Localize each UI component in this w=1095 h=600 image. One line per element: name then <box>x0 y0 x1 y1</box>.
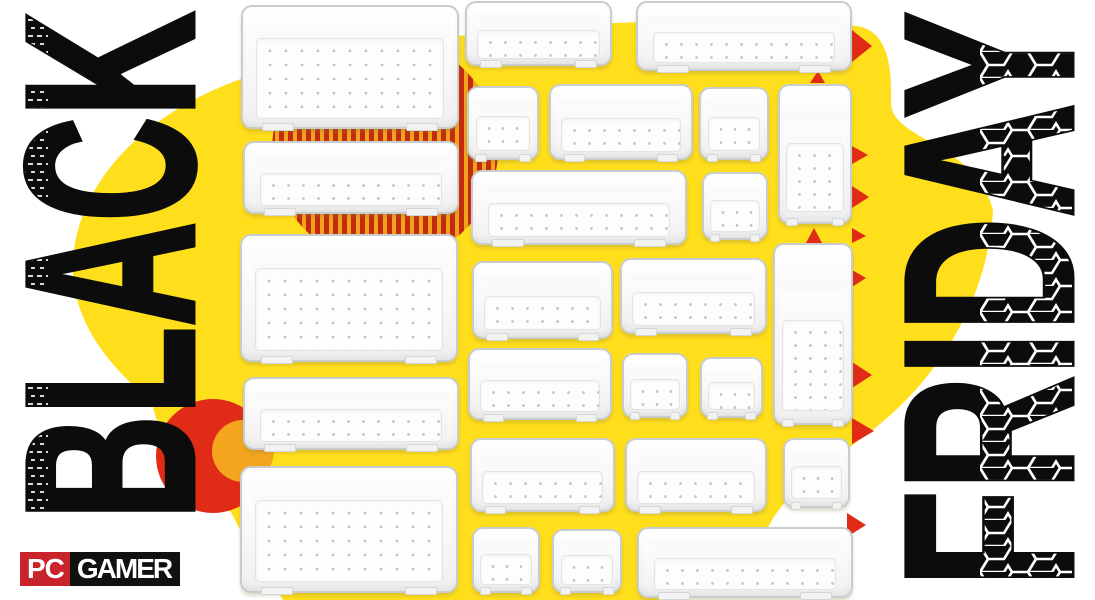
black-friday-promo-banner: BLACK FRIDAY BLACK FRIDAY PC GAMER <box>0 0 1095 600</box>
friday-honeycomb-texture <box>980 0 1095 600</box>
logo-pc-box: PC <box>20 552 70 586</box>
pc-gamer-logo: PC GAMER <box>20 552 180 586</box>
headline-words: BLACK FRIDAY BLACK FRIDAY <box>0 0 1095 600</box>
logo-gamer-box: GAMER <box>70 552 180 586</box>
black-distress-texture <box>20 0 48 600</box>
